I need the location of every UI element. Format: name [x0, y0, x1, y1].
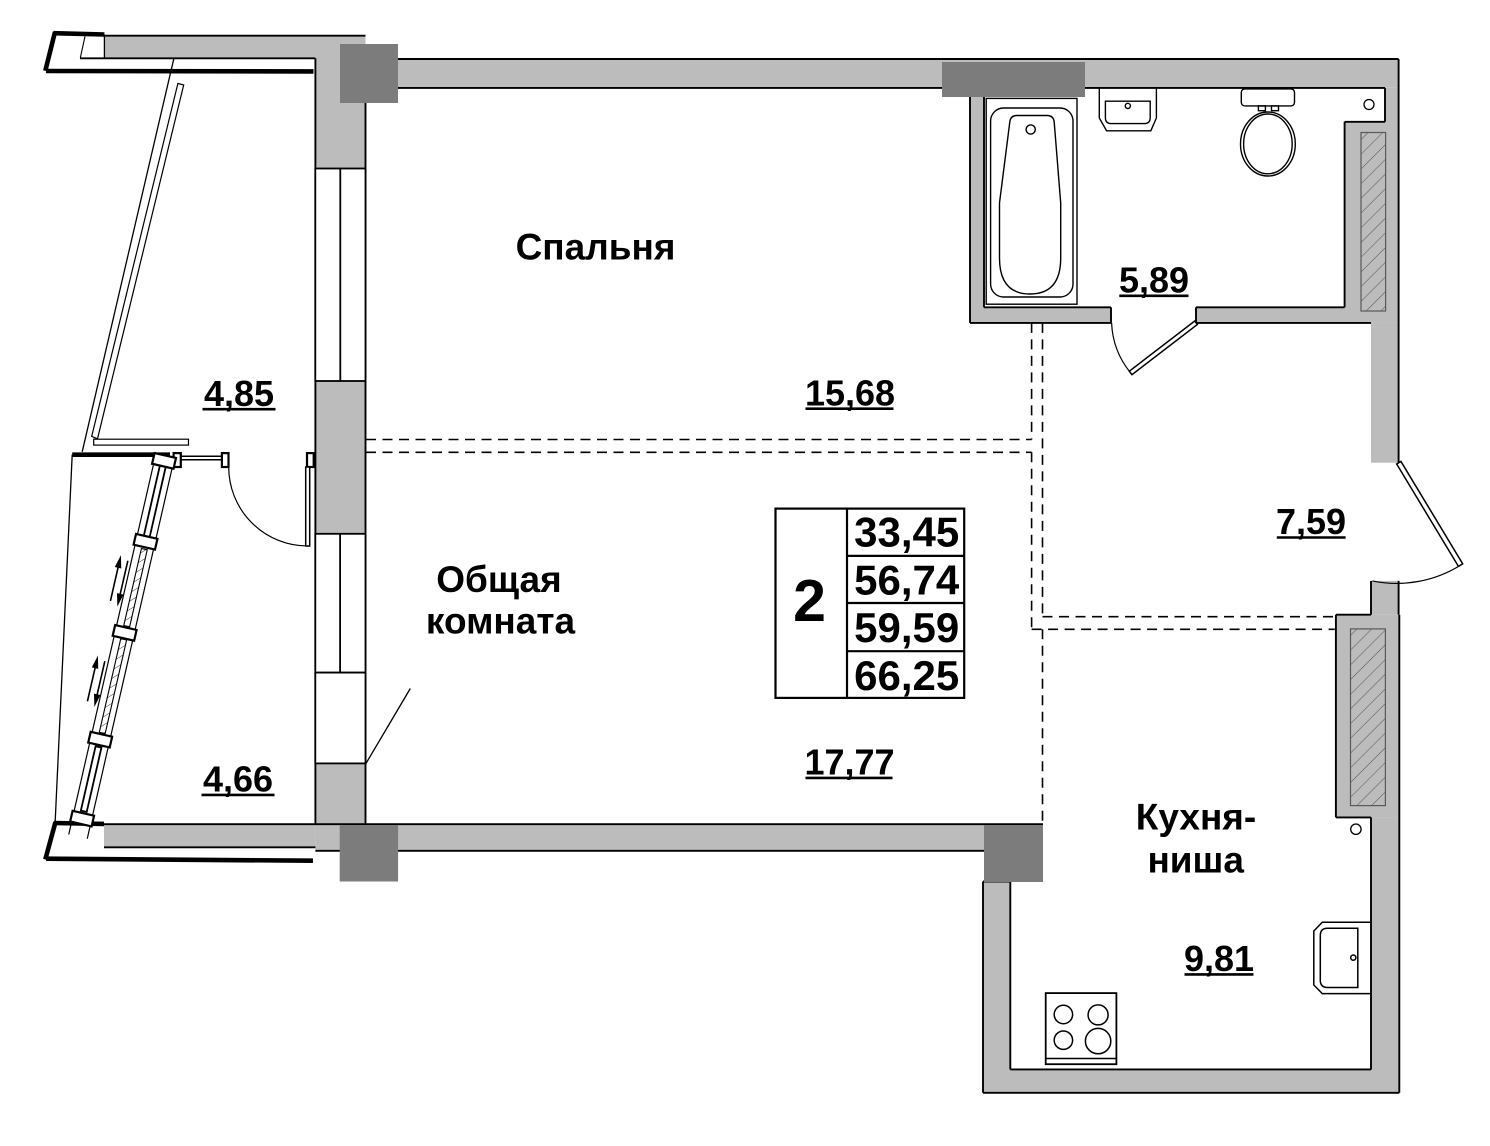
svg-text:комната: комната [426, 601, 576, 642]
svg-text:4,85: 4,85 [204, 373, 274, 414]
svg-text:7,59: 7,59 [1276, 501, 1346, 542]
svg-text:2: 2 [793, 568, 826, 634]
svg-text:ниша: ниша [1147, 840, 1244, 881]
svg-text:5,89: 5,89 [1119, 259, 1189, 300]
svg-text:17,77: 17,77 [804, 742, 894, 783]
svg-text:9,81: 9,81 [1184, 938, 1254, 979]
svg-text:Кухня-: Кухня- [1136, 797, 1256, 838]
svg-text:33,45: 33,45 [854, 509, 959, 556]
svg-text:66,25: 66,25 [854, 652, 959, 699]
svg-text:Спальня: Спальня [516, 227, 676, 268]
svg-text:56,74: 56,74 [854, 556, 960, 603]
svg-text:4,66: 4,66 [203, 759, 273, 800]
svg-text:Общая: Общая [436, 559, 561, 600]
svg-text:15,68: 15,68 [805, 372, 895, 413]
svg-text:59,59: 59,59 [854, 604, 959, 651]
